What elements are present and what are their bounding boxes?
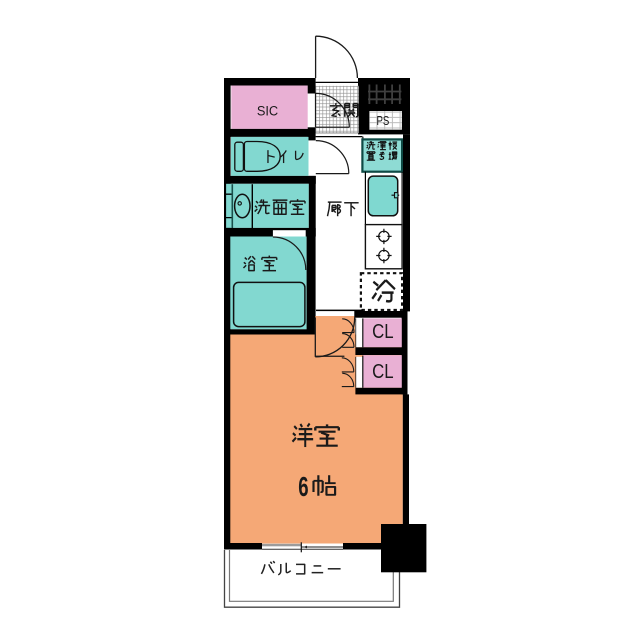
- svg-text:CL: CL: [372, 359, 393, 382]
- svg-text:PS: PS: [376, 115, 389, 129]
- svg-text:CL: CL: [372, 320, 393, 343]
- svg-text:SIC: SIC: [257, 103, 279, 119]
- svg-text:6: 6: [298, 471, 308, 501]
